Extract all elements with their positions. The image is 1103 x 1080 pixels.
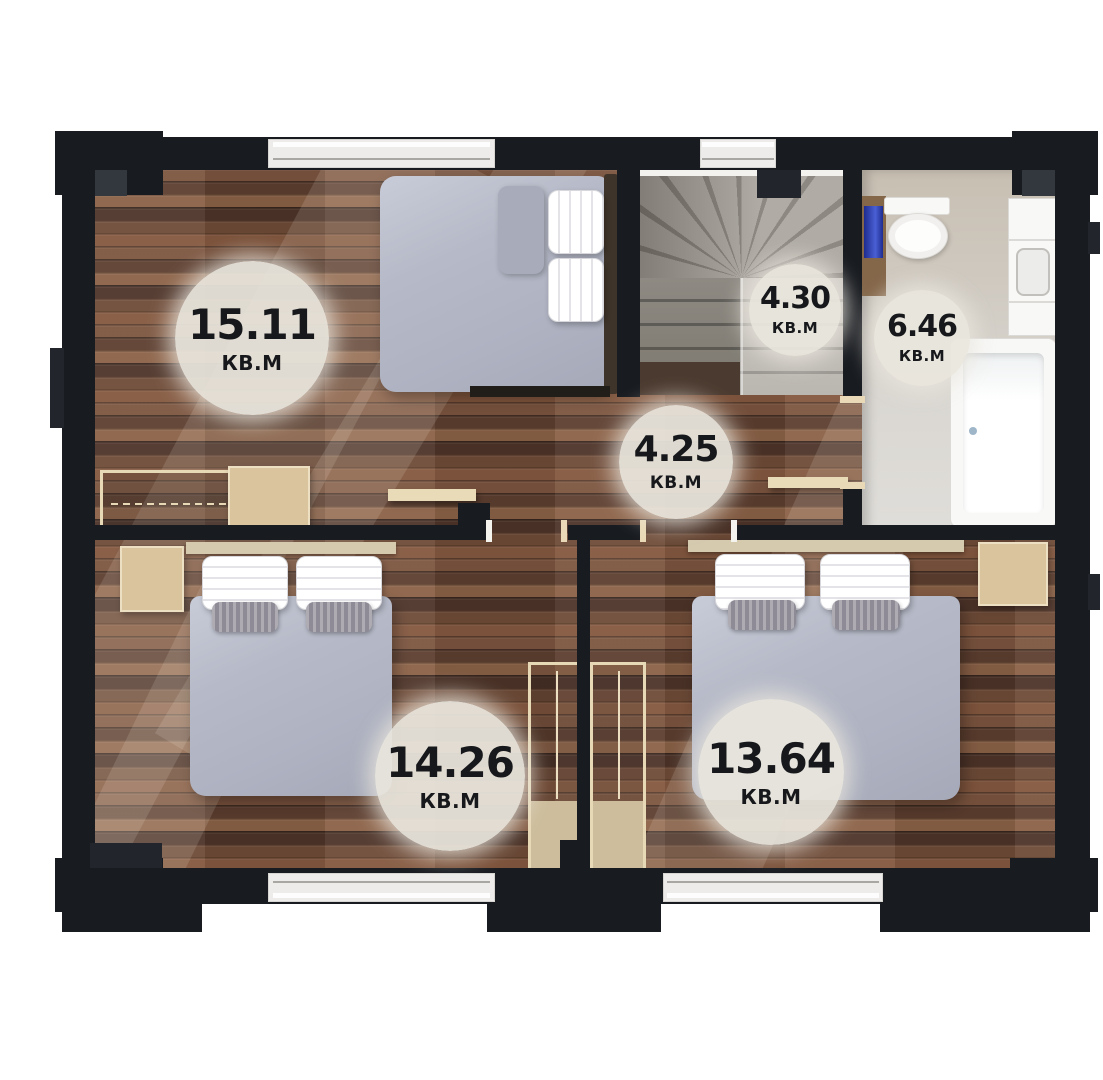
area-badge-staircase: 4.30 КВ.М — [749, 264, 841, 356]
window-glass — [667, 881, 878, 883]
bed-bottom-left-accent-pillow — [306, 602, 372, 632]
wall-bedroom-stairs — [617, 168, 640, 397]
inner-pier — [757, 170, 801, 198]
bed-top-left-footboard — [470, 386, 610, 397]
bed-top-left-pillow-gray — [498, 186, 544, 274]
area-unit: КВ.М — [740, 787, 801, 807]
window-sill — [273, 893, 491, 898]
outer-wall-right — [1055, 137, 1090, 904]
inner-pier — [1022, 170, 1055, 196]
area-unit: КВ.М — [899, 349, 945, 364]
outer-wall-left — [62, 137, 95, 904]
bed-bottom-left-accent-pillow — [212, 602, 278, 632]
stair-dark-landing — [640, 362, 740, 395]
area-unit: КВ.М — [419, 791, 480, 811]
window-top-left — [268, 139, 495, 168]
wall-bedroom-divider — [577, 540, 590, 870]
stair-winder-steps — [640, 176, 843, 278]
foundation-pier — [487, 902, 661, 932]
closet-rail — [556, 671, 558, 799]
foundation-pier — [62, 902, 202, 932]
bathroom-door-jamb — [840, 482, 865, 489]
window-top-stairs — [700, 139, 776, 168]
window-sill — [667, 893, 878, 898]
bed-top-left-pillow — [548, 190, 604, 254]
window-sill — [273, 142, 491, 147]
washing-machine — [1008, 240, 1057, 302]
closet-rail — [618, 671, 620, 799]
bedroom-door-jamb — [486, 520, 492, 542]
bathroom-cabinet — [1008, 198, 1057, 240]
bathtub-faucet — [969, 427, 977, 435]
bathtub — [950, 338, 1057, 528]
bathroom-sink — [864, 206, 883, 258]
area-badge-bedroom-top-left: 15.11 КВ.М — [175, 261, 329, 415]
area-badge-bathroom: 6.46 КВ.М — [874, 290, 970, 386]
bed-top-left-pillow — [548, 258, 604, 322]
outer-wall-bottom — [65, 868, 1090, 904]
hallway-shelf — [768, 477, 848, 488]
nightstand-bottom-left — [120, 546, 184, 612]
bedroom-door-jamb — [561, 520, 567, 542]
closet-base — [593, 801, 643, 871]
wall-divider-cap — [568, 525, 645, 540]
outer-wall-top — [65, 137, 1090, 170]
window-glass — [273, 881, 491, 883]
washer-door — [1016, 248, 1050, 296]
area-value: 14.26 — [386, 742, 514, 784]
window-bottom-left — [268, 873, 495, 902]
nightstand-bottom-right — [978, 542, 1048, 606]
inner-pier — [95, 170, 127, 196]
closet-right — [590, 662, 646, 874]
area-unit: КВ.М — [650, 475, 702, 492]
area-value: 13.64 — [707, 738, 835, 780]
bed-bottom-right-accent-pillow — [728, 600, 796, 630]
area-value: 4.30 — [760, 284, 830, 314]
wall-tab-right — [1088, 574, 1100, 610]
wall-tab-right — [1088, 222, 1100, 254]
bedroom-door-jamb — [640, 520, 646, 542]
window-glass — [273, 158, 491, 160]
dresser-top-left — [228, 466, 310, 532]
area-badge-bedroom-bottom-left: 14.26 КВ.М — [375, 701, 525, 851]
window-sill — [702, 142, 775, 147]
wall-bathroom-upper — [843, 168, 862, 400]
area-badge-bedroom-bottom-right: 13.64 КВ.М — [698, 699, 844, 845]
area-value: 4.25 — [634, 432, 719, 468]
area-badge-hallway: 4.25 КВ.М — [619, 405, 733, 519]
area-value: 6.46 — [887, 312, 957, 342]
area-unit: КВ.М — [221, 353, 282, 373]
inner-pier — [90, 843, 162, 868]
bathroom-counter — [1008, 302, 1057, 336]
wall-tab-left — [50, 348, 64, 428]
wall-shelf — [388, 489, 476, 501]
bed-bottom-left-headboard — [186, 542, 396, 554]
bed-bottom-right-accent-pillow — [832, 600, 900, 630]
area-unit: КВ.М — [772, 321, 818, 336]
foundation-pier — [880, 902, 1090, 932]
wall-divider-foot — [560, 840, 590, 870]
bed-top-left-headboard — [604, 174, 618, 394]
toilet-icon — [888, 213, 948, 259]
area-value: 15.11 — [188, 304, 316, 346]
floor-plan: 15.11 КВ.М 4.30 КВ.М 6.46 КВ.М 4.25 КВ.М… — [0, 0, 1103, 1080]
wall-hall-south-right — [737, 525, 1055, 540]
window-bottom-right — [663, 873, 883, 902]
wall-hall-south-left — [95, 525, 490, 540]
bathroom-door-jamb — [840, 396, 865, 403]
bedroom-door-jamb — [731, 520, 737, 542]
window-glass — [702, 158, 775, 160]
bed-bottom-right-headboard — [688, 540, 964, 552]
stair-center-line — [740, 278, 743, 395]
